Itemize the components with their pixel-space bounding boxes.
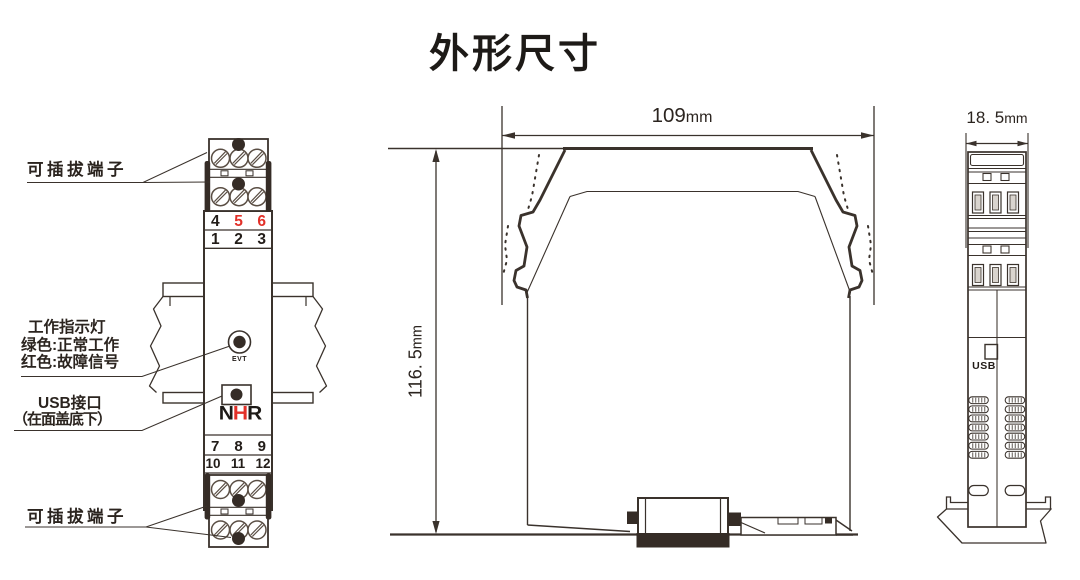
dimension-drawing-canvas — [0, 0, 1080, 580]
logo-letter-n: N — [219, 403, 233, 424]
terminal-number: 2 — [234, 231, 243, 249]
terminal-number: 9 — [258, 438, 266, 455]
din-rail-broken-right — [269, 283, 327, 403]
terminal-numbers-123: 1 2 3 — [211, 231, 266, 249]
terminal-number: 8 — [234, 438, 242, 455]
nhr-logo: NHR — [213, 403, 267, 425]
label-pluggable-terminal-top: 可插拔端子 — [27, 156, 127, 180]
block-side-rail — [205, 161, 211, 212]
terminal-number: 12 — [255, 456, 270, 471]
label-usb-port-note: （在面盖底下） — [13, 408, 111, 429]
label-indicator-line3: 红色:故障信号 — [21, 354, 119, 372]
terminal-number: 3 — [257, 231, 266, 249]
terminal-numbers-101112: 10 11 12 — [206, 456, 271, 471]
arrowhead — [966, 141, 977, 147]
label-indicator-line2: 绿色:正常工作 — [21, 337, 119, 355]
dimension-width-value: 109 — [652, 104, 686, 127]
arrowhead — [502, 132, 515, 139]
outline-dimension-drawing-page: 外形尺寸 可插拔端子 工作指示灯 绿色:正常工作 红色:故障信号 USB接口 （… — [0, 0, 1080, 580]
terminal-dot — [232, 138, 245, 151]
status-led — [229, 331, 251, 353]
terminal-numbers-456: 4 5 6 — [211, 213, 266, 231]
label-pluggable-terminal-bottom: 可插拔端子 — [27, 503, 127, 527]
inner-profile — [527, 192, 851, 294]
dimension-depth-18-5mm: 18. 5mm — [957, 108, 1037, 128]
din-clip — [627, 498, 741, 548]
terminal-dot — [232, 532, 245, 545]
clamp-jaw-right — [811, 150, 862, 298]
end-view-drawing — [938, 133, 1052, 543]
jaw-travel-dotted-lines — [504, 155, 873, 273]
terminal-number: 1 — [211, 231, 220, 249]
terminal-numbers-789: 7 8 9 — [211, 438, 266, 455]
block-side-rail — [266, 474, 272, 520]
block-side-rail — [266, 161, 272, 212]
terminal-dot — [232, 494, 245, 507]
terminal-block-top — [205, 138, 272, 212]
logo-letter-r: R — [247, 403, 261, 424]
terminal-number: 11 — [231, 456, 245, 471]
terminal-number: 6 — [257, 213, 266, 231]
side-view-drawing — [388, 106, 874, 548]
dimension-height-116-5mm: 116. 5mm — [406, 317, 427, 407]
label-work-indicator: 工作指示灯 绿色:正常工作 红色:故障信号 — [21, 319, 119, 372]
terminal-number: 7 — [211, 438, 219, 455]
din-clip-latch — [741, 518, 853, 536]
dimension-width-109mm: 109mm — [622, 104, 742, 128]
din-rail-broken-left — [150, 283, 208, 403]
arrowhead — [432, 521, 439, 534]
label-indicator-line1: 工作指示灯 — [21, 319, 119, 337]
usb-port — [222, 385, 251, 405]
arrowhead — [861, 132, 874, 139]
arrowhead — [432, 149, 439, 162]
dimension-height-unit: mm — [410, 325, 426, 349]
dimension-depth-unit: mm — [1004, 110, 1027, 126]
logo-letter-h: H — [233, 403, 247, 424]
arrowhead — [1018, 141, 1029, 147]
usb-label-side: USB — [970, 360, 998, 372]
terminal-number: 10 — [206, 456, 221, 471]
block-side-rail — [205, 474, 211, 520]
led-label-evt: EVT — [227, 356, 252, 363]
terminal-number: 5 — [234, 213, 243, 231]
terminal-number: 4 — [211, 213, 220, 231]
page-title: 外形尺寸 — [395, 21, 635, 79]
dimension-depth-value: 18. 5 — [966, 108, 1004, 127]
terminal-dot — [232, 178, 245, 191]
dimension-width-unit: mm — [686, 109, 713, 126]
dimension-height-value: 116. 5 — [406, 349, 426, 398]
